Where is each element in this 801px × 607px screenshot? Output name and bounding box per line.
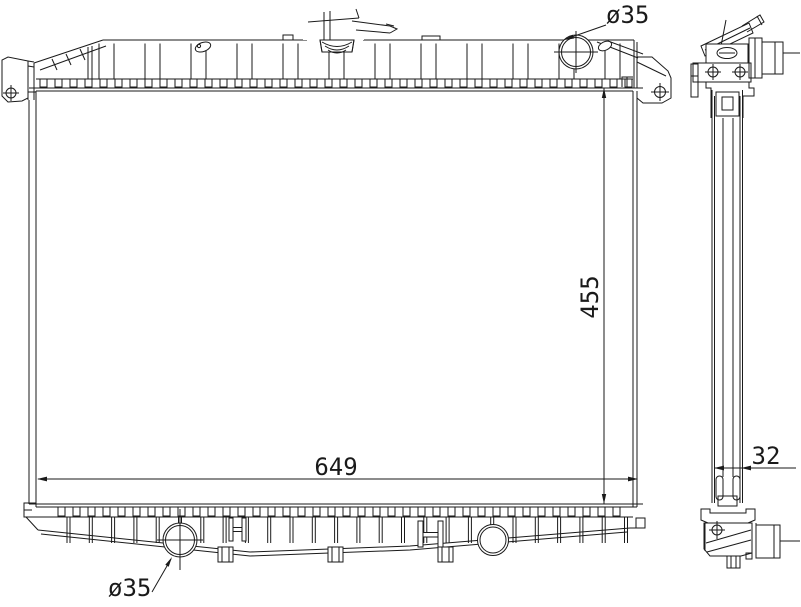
radiator-technical-drawing: 455 649 32 ø35 ø35 bbox=[0, 0, 801, 607]
bottom-tank-teeth bbox=[58, 507, 620, 516]
mounting-peg bbox=[328, 547, 343, 562]
top-tab bbox=[422, 36, 440, 40]
top-tank-teeth bbox=[40, 79, 632, 87]
side-top-pipe bbox=[749, 38, 800, 78]
label-core-height: 455 bbox=[576, 275, 604, 318]
side-transition bbox=[706, 82, 754, 118]
filler-cap bbox=[303, 9, 397, 53]
dimension-top-port: ø35 bbox=[564, 1, 649, 40]
mounting-bracket-right bbox=[637, 57, 671, 103]
side-core-channel bbox=[712, 90, 743, 506]
mounting-peg bbox=[218, 547, 233, 562]
top-tab bbox=[283, 35, 293, 40]
radiator-core bbox=[28, 88, 643, 507]
tank-hole bbox=[194, 40, 212, 54]
side-bottom-assembly bbox=[701, 509, 800, 568]
label-core-width: 649 bbox=[314, 453, 357, 481]
h-feature bbox=[229, 518, 246, 541]
dimension-core-width: 649 bbox=[37, 453, 638, 481]
side-view bbox=[691, 15, 800, 568]
dimension-core-height: 455 bbox=[576, 88, 606, 504]
side-drain-plug bbox=[727, 556, 740, 568]
side-upper-body bbox=[706, 44, 748, 63]
cap-neck bbox=[320, 40, 354, 53]
mounting-peg bbox=[438, 547, 453, 562]
bottom-tank bbox=[24, 503, 645, 570]
label-bottom-port-diameter: ø35 bbox=[108, 574, 151, 602]
outlet-port-circle bbox=[478, 525, 509, 556]
drain-port-circle bbox=[157, 509, 203, 570]
label-top-port-diameter: ø35 bbox=[606, 1, 649, 29]
h-feature bbox=[418, 521, 443, 547]
inlet-port-circle bbox=[554, 31, 598, 73]
dimension-core-thickness: 32 bbox=[714, 442, 796, 470]
top-tank-ribs bbox=[99, 44, 620, 80]
side-bottom-pipe bbox=[752, 523, 800, 558]
front-view bbox=[2, 9, 671, 570]
dimension-bottom-port: ø35 bbox=[108, 557, 172, 602]
tank-hole bbox=[597, 39, 613, 53]
label-core-thickness: 32 bbox=[752, 442, 781, 470]
mounting-bracket-left bbox=[2, 57, 34, 102]
